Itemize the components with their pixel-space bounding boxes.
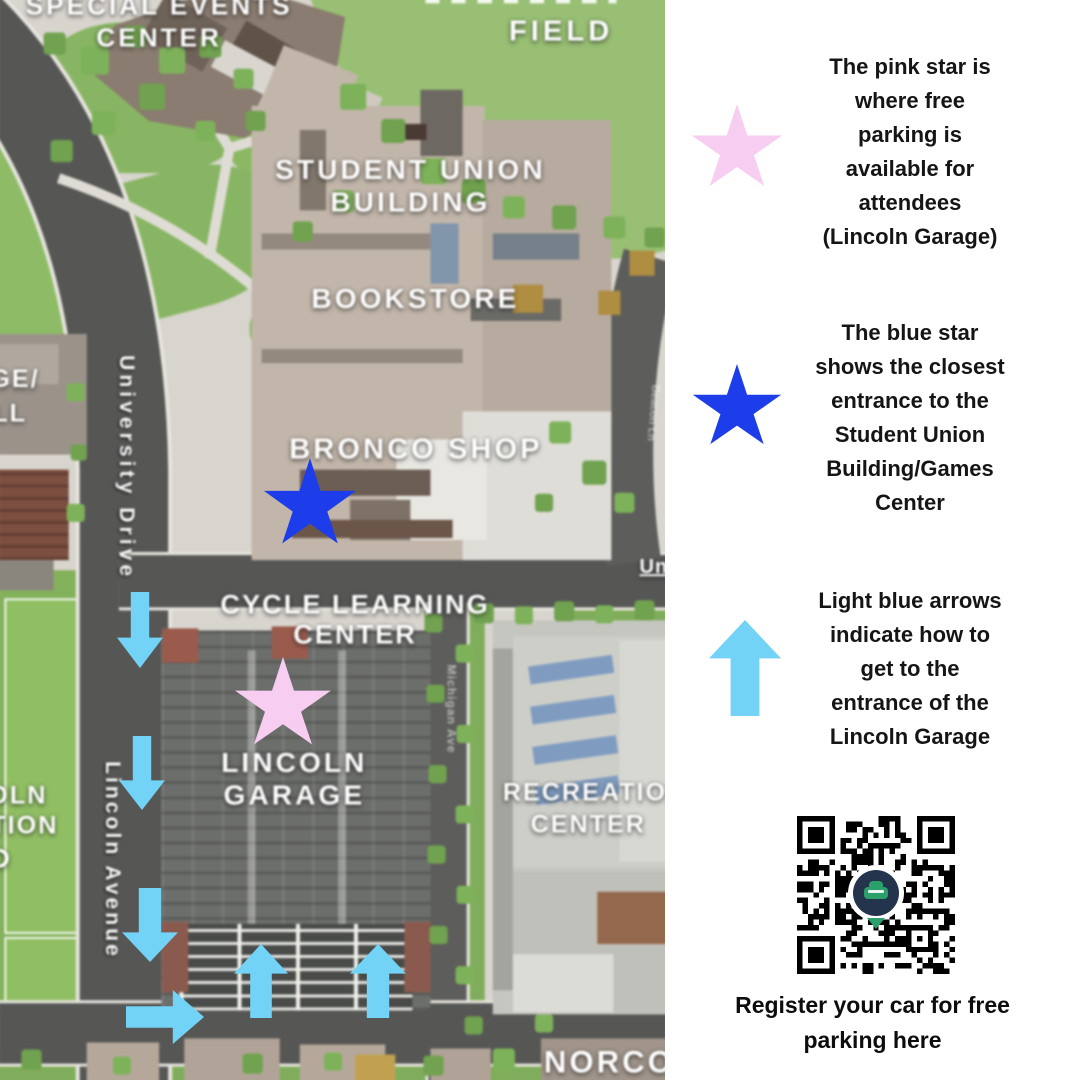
rec-section bbox=[513, 954, 614, 1012]
legend-text-arrows: Light blue arrows indicate how to get to… bbox=[760, 584, 1060, 754]
house bbox=[184, 1038, 279, 1080]
label-lincoln-garage: LINCOLN GARAGE bbox=[211, 747, 377, 811]
qr-alignment bbox=[906, 925, 933, 952]
label-special-events-center: SPECIAL EVENTS CENTER bbox=[8, 0, 310, 54]
brick-building bbox=[0, 470, 69, 560]
qr-logo-circle bbox=[853, 870, 899, 916]
garage-stairwell bbox=[162, 628, 198, 662]
label-partial-ll: LL bbox=[0, 399, 53, 428]
left-building bbox=[0, 560, 54, 590]
sub-skylight bbox=[493, 233, 579, 259]
qr-finder-top-right bbox=[917, 816, 955, 854]
label-bronco-shop: BRONCO SHOP bbox=[278, 433, 554, 466]
rec-center-edge bbox=[493, 649, 513, 991]
label-cycle-learning-center: CYCLE LEARNING CENTER bbox=[204, 589, 506, 649]
label-recreation: RECREATION bbox=[503, 778, 665, 807]
qr-finder-top-left bbox=[797, 816, 835, 854]
qr-caption: Register your car for free parking here bbox=[685, 988, 1060, 1058]
street-michigan-ave: Michigan Ave bbox=[445, 665, 459, 754]
courtyard bbox=[355, 1055, 395, 1080]
label-bookstore: BOOKSTORE bbox=[300, 283, 531, 315]
planter bbox=[629, 251, 654, 276]
street-lincoln-avenue: Lincoln Avenue bbox=[100, 761, 124, 959]
sub-roof-dark bbox=[404, 124, 426, 140]
label-partial-un: Un bbox=[640, 556, 665, 579]
label-partial-tion: TION bbox=[0, 811, 71, 840]
label-recreation-center: CENTER bbox=[513, 810, 664, 839]
house bbox=[430, 1049, 490, 1080]
qr-code bbox=[797, 816, 955, 974]
label-student-union-building: STUDENT UNION BUILDING bbox=[255, 154, 567, 218]
house bbox=[87, 1043, 159, 1080]
legend-panel: The pink star is where free parking is a… bbox=[665, 0, 1080, 1080]
qr-finder-bottom-left bbox=[797, 936, 835, 974]
map-artwork: SPECIAL EVENTS CENTER FIELD STUDENT UNIO… bbox=[0, 0, 665, 1080]
rec-deck bbox=[597, 892, 665, 944]
garage-stairwell bbox=[404, 922, 430, 992]
campus-map: SPECIAL EVENTS CENTER FIELD STUDENT UNIO… bbox=[0, 0, 665, 1080]
car-icon bbox=[864, 887, 888, 899]
qr-logo-pin-tip bbox=[867, 918, 885, 929]
label-partial-oln: OLN bbox=[0, 781, 59, 810]
parking-flyer: SPECIAL EVENTS CENTER FIELD STUDENT UNIO… bbox=[0, 0, 1080, 1080]
label-partial-d: D bbox=[0, 844, 30, 875]
label-norco: NORCO bbox=[539, 1045, 665, 1080]
sub-skylight bbox=[430, 223, 458, 283]
planter bbox=[598, 291, 620, 315]
street-university-drive: University Drive bbox=[114, 355, 138, 580]
label-field-partial-tops bbox=[425, 0, 616, 3]
sub-roof-strip bbox=[262, 349, 463, 363]
label-field: FIELD bbox=[471, 15, 652, 48]
sub-roof bbox=[420, 90, 462, 156]
legend-text-pink-star: The pink star is where free parking is a… bbox=[760, 50, 1060, 254]
sub-roof-strip bbox=[262, 233, 443, 249]
legend-text-blue-star: The blue star shows the closest entrance… bbox=[760, 316, 1060, 520]
qr-logo bbox=[848, 865, 904, 921]
label-partial-ge: GE/ bbox=[0, 365, 51, 394]
